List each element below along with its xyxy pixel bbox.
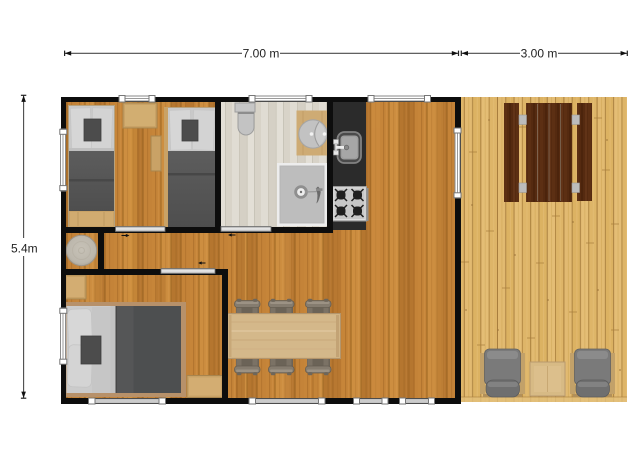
svg-text:7.00 m: 7.00 m: [243, 47, 280, 61]
svg-text:5.4m: 5.4m: [11, 242, 38, 256]
svg-text:3.00 m: 3.00 m: [521, 47, 558, 61]
